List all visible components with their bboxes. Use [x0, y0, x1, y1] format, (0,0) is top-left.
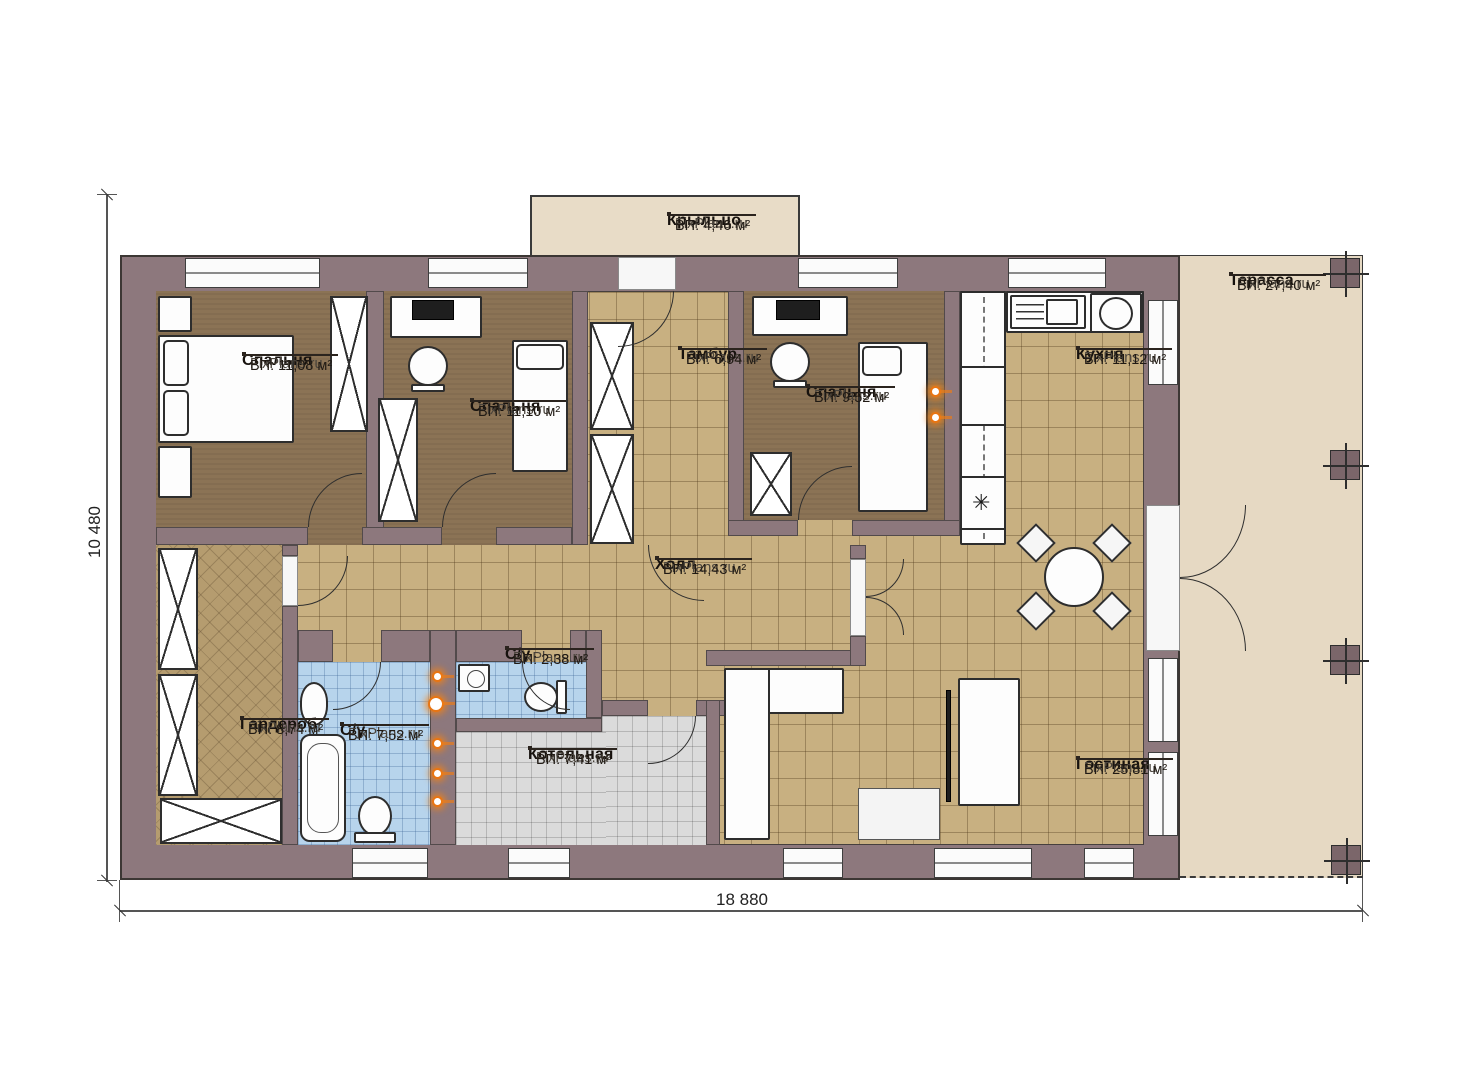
window: [428, 258, 528, 288]
room-area: ВП: 6,94 м²: [680, 348, 767, 370]
washing-machine: [458, 664, 490, 692]
room-area: ВП: 2,38 м²: [507, 648, 594, 670]
plumbing-riser-icon: [432, 796, 443, 807]
dimension-line-left: [106, 195, 108, 882]
terrace-door-opening: [1146, 505, 1180, 651]
stove: [960, 366, 1006, 426]
door-opening: [850, 559, 866, 636]
interior-wall: [602, 700, 648, 716]
room-area: ВП: 8,74 м²: [242, 718, 329, 740]
dimension-label-left: 10 480: [85, 506, 105, 558]
front-door-opening: [618, 257, 676, 290]
interior-wall: [282, 545, 298, 556]
window: [185, 258, 320, 288]
toilet: [358, 796, 392, 836]
tv: [946, 690, 951, 802]
coffee-table: [858, 788, 940, 840]
interior-wall: [850, 545, 866, 559]
porch-platform: [530, 195, 800, 255]
wardrobe-cabinet: [160, 798, 282, 844]
plumbing-riser-icon: [930, 412, 941, 423]
interior-wall: [586, 630, 602, 718]
interior-wall: [706, 650, 866, 666]
room-area: ВП: 11,08 м²: [244, 354, 338, 376]
fridge-symbol-icon: ✳: [972, 492, 990, 514]
plumbing-riser-icon: [432, 738, 443, 749]
terrace-column: [1331, 845, 1361, 875]
interior-wall: [156, 527, 308, 545]
corner-sofa: [724, 668, 770, 840]
dimension-extension: [1362, 878, 1363, 922]
room-area: ВП: 4,46 м²: [669, 214, 756, 236]
room-area: ВП: 11,10 м²: [472, 400, 566, 422]
interior-wall: [298, 630, 333, 662]
interior-wall: [728, 291, 744, 536]
nightstand: [158, 296, 192, 332]
interior-wall: [456, 718, 602, 732]
washer-drum: [467, 670, 485, 688]
window: [1148, 300, 1178, 385]
interior-wall: [944, 291, 960, 536]
interior-wall: [362, 527, 442, 545]
dimension-line-bottom: [120, 910, 1363, 912]
floor-plan: ✳ Крыльцо FixPlans.ru: [0, 0, 1473, 1080]
wardrobe-cabinet: [378, 398, 418, 522]
window: [352, 848, 428, 878]
pillow: [516, 344, 564, 370]
interior-wall: [728, 520, 798, 536]
plumbing-riser-icon: [432, 671, 443, 682]
plumbing-riser-icon: [930, 386, 941, 397]
window: [1148, 658, 1178, 742]
chair-back: [773, 380, 807, 388]
chair-back: [411, 384, 445, 392]
room-area: ВП: 11,12 м²: [1078, 348, 1172, 370]
plumbing-riser-icon: [432, 768, 443, 779]
window: [783, 848, 843, 878]
interior-wall: [496, 527, 572, 545]
room-area: ВП: 7,41 м²: [530, 748, 617, 770]
door-opening: [282, 556, 298, 606]
interior-wall: [381, 630, 430, 662]
nightstand: [158, 446, 192, 498]
desk-computer: [412, 300, 454, 320]
closet: [590, 434, 634, 544]
interior-wall: [852, 520, 960, 536]
pillow: [163, 340, 189, 386]
interior-wall: [706, 700, 720, 845]
terrace-column: [1330, 645, 1360, 675]
window: [934, 848, 1032, 878]
sink-square: [1046, 299, 1078, 325]
terrace-column: [1330, 450, 1360, 480]
toilet-tank: [354, 832, 396, 843]
wardrobe-cabinet: [158, 674, 198, 796]
room-area: ВП: 27,40 м²: [1231, 274, 1326, 296]
terrace-column: [1330, 258, 1360, 288]
interior-wall: [430, 630, 456, 845]
kitchen-sink-bowl: [1099, 297, 1133, 330]
interior-wall: [572, 291, 588, 545]
dimension-extension: [119, 880, 120, 922]
dining-table: [1044, 547, 1104, 607]
window: [1008, 258, 1106, 288]
bathtub: [300, 734, 346, 842]
plumbing-riser-icon: [428, 696, 444, 712]
room-area: ВП: 25,81 м²: [1078, 758, 1173, 780]
desk-chair: [770, 342, 810, 382]
window: [508, 848, 570, 878]
window: [1084, 848, 1134, 878]
pillow: [163, 390, 189, 436]
interior-wall: [850, 636, 866, 666]
wardrobe-cabinet: [750, 452, 792, 516]
desk-computer: [776, 300, 820, 320]
armchair: [958, 678, 1020, 806]
bathtub-inner: [307, 743, 339, 833]
room-area: ВП: 9,52 м²: [808, 386, 895, 408]
pillow: [862, 346, 902, 376]
wardrobe-cabinet: [158, 548, 198, 670]
room-area: ВП: 7,52 м²: [342, 724, 429, 746]
window: [798, 258, 898, 288]
room-area: ВП: 14,43 м²: [657, 558, 752, 580]
desk-chair: [408, 346, 448, 386]
dimension-label-bottom: 18 880: [716, 890, 768, 910]
